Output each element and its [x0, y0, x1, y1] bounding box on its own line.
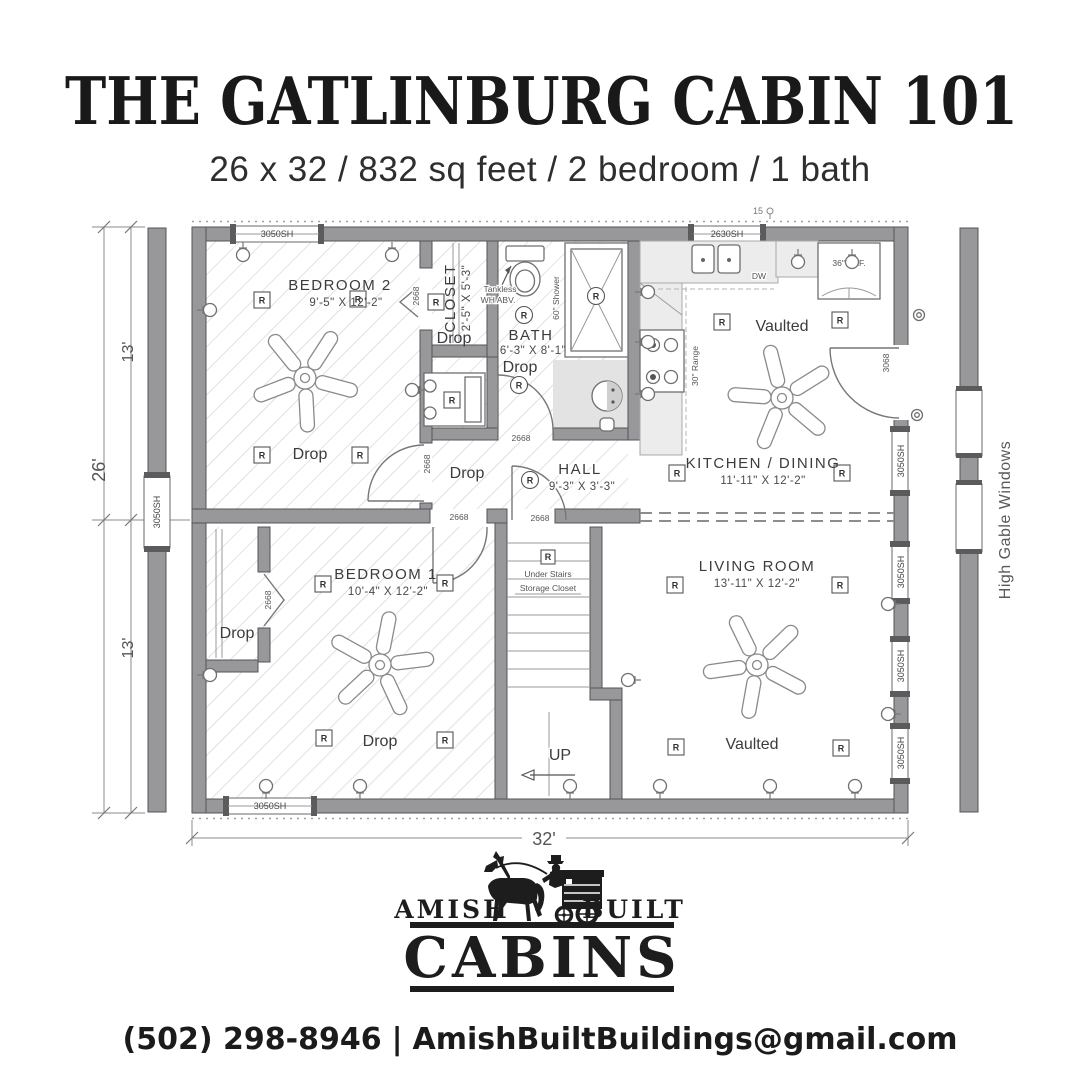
svg-text:R: R [672, 581, 679, 591]
tankless-label-1: Tankless [483, 284, 516, 294]
svg-text:R: R [673, 743, 680, 753]
under-stairs-label-2: Storage Closet [520, 583, 577, 593]
drop-label: Drop [450, 465, 485, 482]
svg-text:3050SH: 3050SH [896, 556, 906, 589]
logo-built: BUILT [582, 895, 686, 924]
svg-text:3050SH: 3050SH [896, 650, 906, 683]
up-label: UP [549, 747, 571, 764]
logo-rule-bottom [410, 986, 674, 992]
door-kitchen-exterior: 3068 [830, 345, 909, 420]
svg-text:2668: 2668 [531, 513, 550, 523]
svg-text:R: R [516, 381, 523, 391]
svg-text:2668: 2668 [263, 590, 273, 609]
window-bedroom2-top: 3050SH [230, 224, 324, 244]
window-kitchen-right: 3050SH [890, 426, 910, 496]
ceiling-break-line [640, 513, 894, 521]
electrical-note-symbol [767, 208, 773, 214]
drop-label: Drop [220, 625, 255, 642]
svg-text:3050SH: 3050SH [896, 445, 906, 478]
svg-text:R: R [321, 734, 328, 744]
living-dims: 13'-11" X 12'-2" [714, 578, 800, 590]
svg-text:2668: 2668 [512, 433, 531, 443]
svg-text:3050SH: 3050SH [261, 229, 294, 239]
svg-text:R: R [442, 736, 449, 746]
bedroom1-dims: 10'-4" X 12'-2" [348, 586, 428, 598]
svg-text:R: R [442, 579, 449, 589]
svg-text:R: R [527, 476, 534, 486]
svg-text:2668: 2668 [450, 512, 469, 522]
svg-text:R: R [545, 552, 552, 562]
logo-amish: AMISH [393, 895, 509, 924]
svg-text:3050SH: 3050SH [896, 737, 906, 770]
closet-dims: 2'-5" X 5'-3" [461, 265, 473, 331]
dim-26ft: 26' [89, 458, 109, 481]
shower-label: 60" Shower [551, 276, 561, 320]
drop-label: Drop [503, 359, 538, 376]
svg-text:R: R [449, 396, 456, 406]
electrical-note: 15 [753, 206, 763, 216]
tankless-label-2: WH ABV. [481, 295, 516, 305]
floor-plan: 3050SH 2630SH 3050SH 3050SH [0, 0, 1080, 1080]
contact-line: (502) 298-8946|AmishBuiltBuildings@gmail… [0, 1022, 1080, 1057]
drop-label: Drop [437, 330, 472, 347]
drop-label: Drop [293, 446, 328, 463]
svg-text:2668: 2668 [411, 286, 421, 305]
dim-13ft-top: 13' [120, 342, 137, 363]
living-label: LIVING ROOM [699, 558, 816, 575]
window-bedroom1-bottom: 3050SH [223, 796, 317, 816]
page: THE GATLINBURG CABIN 101 26 x 32 / 832 s… [0, 0, 1080, 1080]
exterior-light-icon [912, 410, 923, 421]
svg-text:R: R [259, 296, 266, 306]
svg-text:3050SH: 3050SH [254, 801, 287, 811]
gable-strip-left: 3050SH [144, 228, 170, 812]
kitchen-dims: 11'-11" X 12'-2" [720, 475, 805, 487]
window-living-right-3: 3050SH [890, 723, 910, 784]
dim-32ft: 32' [532, 829, 555, 849]
under-stairs-label-1: Under Stairs [524, 569, 571, 579]
vaulted-label: Vaulted [725, 736, 778, 753]
svg-text:R: R [593, 292, 600, 302]
range-label: 30" Range [690, 346, 700, 386]
svg-text:3068: 3068 [881, 353, 891, 372]
exterior-light-icon [914, 310, 925, 321]
vaulted-label: Vaulted [755, 318, 808, 335]
svg-text:2668: 2668 [422, 454, 432, 473]
fan-living [690, 595, 830, 737]
hall-dims: 9'-3" X 3'-3" [549, 481, 615, 493]
svg-text:R: R [719, 318, 726, 328]
closet-label: CLOSET [442, 263, 459, 332]
svg-text:R: R [521, 311, 528, 321]
svg-text:R: R [674, 469, 681, 479]
dim-13ft-bottom: 13' [120, 638, 137, 659]
dishwasher-label: DW [752, 271, 766, 281]
bath-dims: 6'-3" X 8'-1" [500, 345, 566, 357]
bedroom2-dims: 9'-5" X 12'-2" [309, 297, 382, 309]
svg-text:R: R [838, 744, 845, 754]
bedroom1-label: BEDROOM 1 [334, 566, 438, 583]
hall-label: HALL [558, 461, 602, 478]
svg-text:R: R [433, 298, 440, 308]
svg-text:R: R [259, 451, 266, 461]
refrigerator: 36" REF. [818, 243, 880, 299]
bedroom2-label: BEDROOM 2 [288, 277, 392, 294]
window-living-right-2: 3050SH [890, 636, 910, 697]
svg-text:R: R [357, 451, 364, 461]
svg-text:R: R [837, 581, 844, 591]
svg-text:R: R [320, 580, 327, 590]
window-living-right-1: 3050SH [890, 541, 910, 604]
contact-separator: | [382, 1022, 413, 1057]
logo: AMISH BUILT CABINS [393, 851, 686, 992]
email-address: AmishBuiltBuildings@gmail.com [413, 1022, 958, 1057]
drop-label: Drop [363, 733, 398, 750]
svg-text:3050SH: 3050SH [152, 496, 162, 529]
logo-cabins: CABINS [403, 925, 680, 991]
phone-number: (502) 298-8946 [123, 1022, 382, 1057]
svg-text:2630SH: 2630SH [711, 229, 744, 239]
svg-text:R: R [837, 316, 844, 326]
high-gable-windows-label: High Gable Windows [997, 441, 1014, 599]
gable-strip-right: High Gable Windows [956, 228, 1014, 812]
bath-label: BATH [509, 327, 554, 344]
kitchen-label: KITCHEN / DINING [686, 455, 841, 472]
